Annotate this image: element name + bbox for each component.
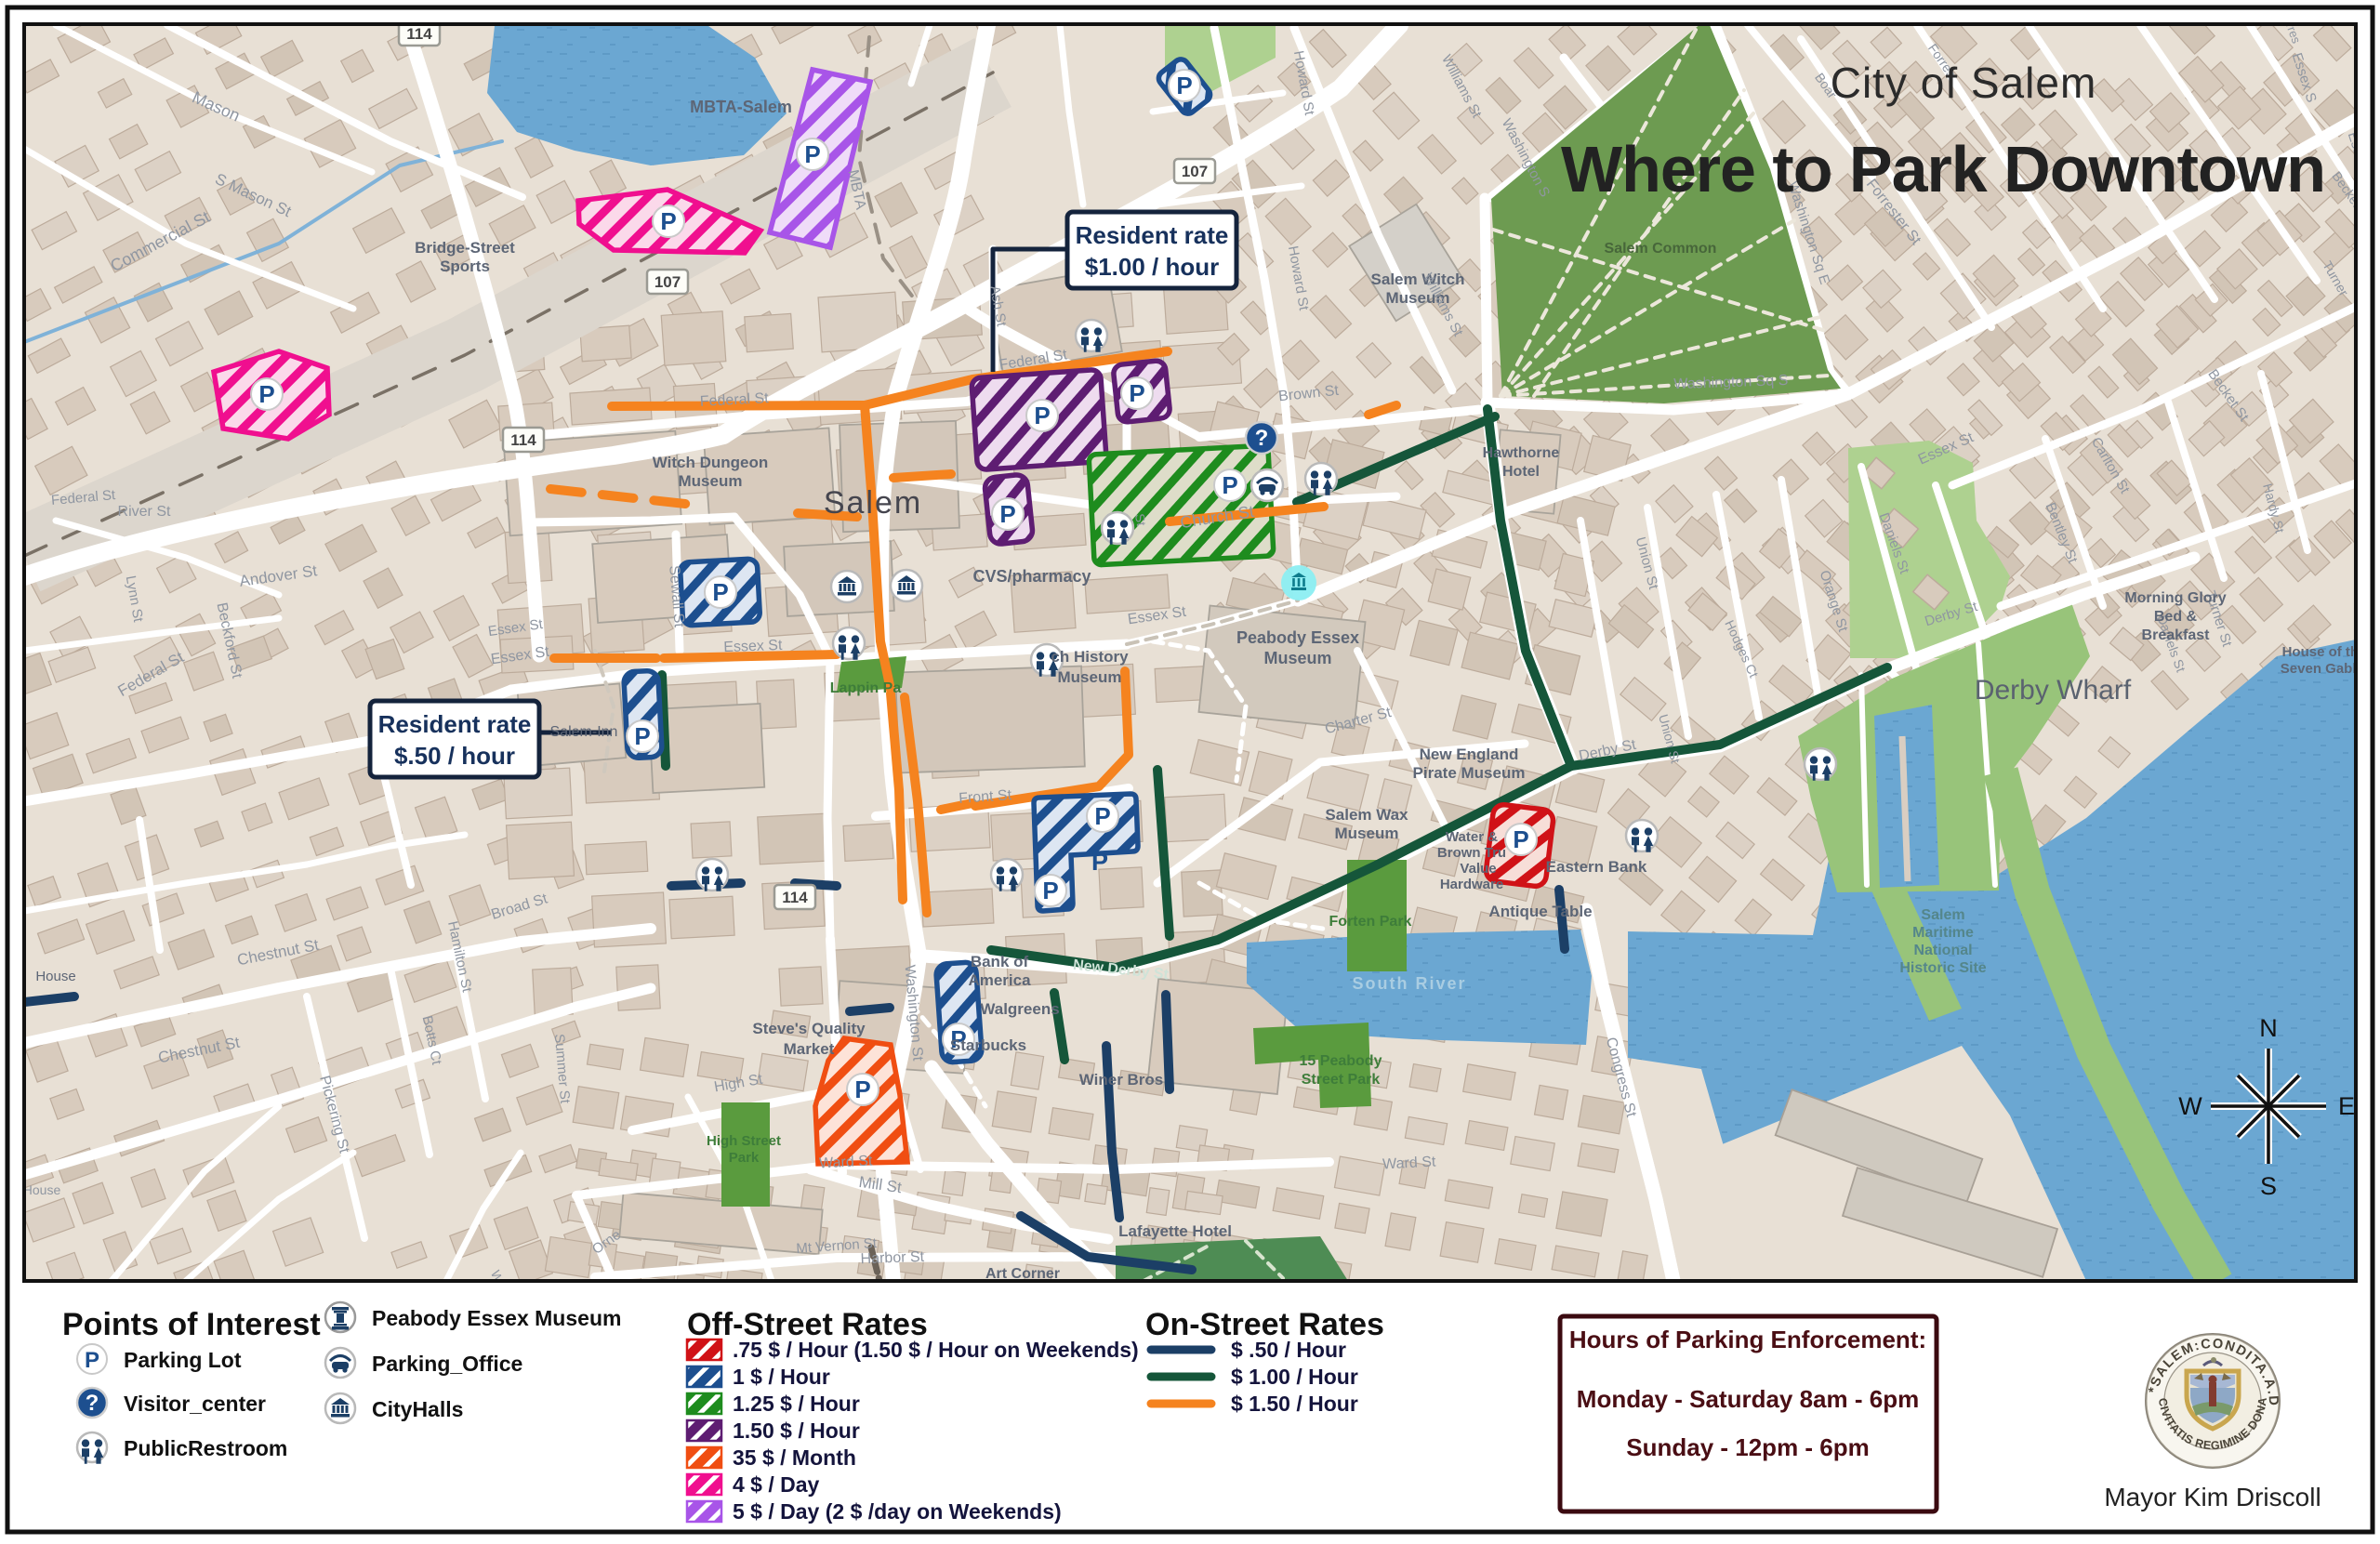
svg-text:W: W	[2178, 1092, 2202, 1120]
svg-text:Visitor_center: Visitor_center	[124, 1392, 266, 1416]
svg-text:1.50 $ / Hour: 1.50 $ / Hour	[733, 1419, 860, 1443]
svg-text:P: P	[712, 578, 728, 606]
svg-text:Harbor St: Harbor St	[860, 1249, 925, 1267]
svg-text:Points of Interest: Points of Interest	[62, 1307, 321, 1342]
svg-text:114: 114	[510, 431, 536, 449]
svg-text:Parking Lot: Parking Lot	[124, 1348, 242, 1372]
svg-text:Hours of Parking Enforcement:: Hours of Parking Enforcement:	[1569, 1326, 1926, 1353]
svg-text:P: P	[1091, 848, 1108, 876]
svg-text:Water &: Water &	[1446, 829, 1498, 845]
svg-text:CityHalls: CityHalls	[372, 1397, 463, 1421]
svg-text:City of Salem: City of Salem	[1831, 59, 2097, 107]
svg-text:114: 114	[406, 25, 432, 43]
svg-text:Resident rate: Resident rate	[378, 710, 532, 738]
svg-text:107: 107	[654, 273, 681, 291]
svg-text:South River: South River	[1352, 974, 1466, 993]
svg-text:Hardware: Hardware	[1440, 877, 1503, 892]
svg-text:.75 $ / Hour (1.50 $ / Hour o: .75 $ / Hour (1.50 $ / Hour on Weekends)	[733, 1338, 1139, 1362]
svg-text:Salem-Inn: Salem-Inn	[550, 724, 618, 740]
svg-text:Monday - Saturday 8am - 6pm: Monday - Saturday 8am - 6pm	[1577, 1385, 1919, 1413]
svg-text:House: House	[23, 1182, 61, 1197]
svg-text:$.50 / hour: $.50 / hour	[394, 742, 515, 770]
svg-text:1 $ / Hour: 1 $ / Hour	[733, 1365, 830, 1389]
svg-text:PublicRestroom: PublicRestroom	[124, 1436, 287, 1460]
svg-text:Brown Tru: Brown Tru	[1437, 845, 1506, 861]
svg-text:Resident rate: Resident rate	[1076, 221, 1229, 249]
svg-text:Ward St: Ward St	[1382, 1154, 1437, 1172]
svg-text:Antique Table: Antique Table	[1488, 903, 1592, 920]
svg-text:P: P	[1222, 471, 1237, 499]
svg-text:Steve's Quality: Steve's Quality	[752, 1020, 866, 1037]
svg-text:P: P	[854, 1076, 870, 1103]
svg-text:Breakfast: Breakfast	[2142, 627, 2211, 643]
svg-text:5 $ / Day (2 $ /day on Weekend: 5 $ / Day (2 $ /day on Weekends)	[733, 1499, 1062, 1524]
svg-text:Derby Wharf: Derby Wharf	[1975, 675, 2132, 706]
svg-text:Parking_Office: Parking_Office	[372, 1352, 522, 1376]
svg-text:Museum: Museum	[679, 472, 743, 490]
svg-text:Salem Witch: Salem Witch	[1371, 271, 1465, 288]
svg-text:4 $ / Day: 4 $ / Day	[733, 1472, 820, 1497]
svg-text:$ .50 / Hour: $ .50 / Hour	[1231, 1338, 1346, 1362]
svg-text:MBTA-Salem: MBTA-Salem	[690, 98, 792, 116]
svg-text:1.25 $ / Hour: 1.25 $ / Hour	[733, 1392, 860, 1416]
svg-text:P: P	[1513, 825, 1528, 853]
svg-text:Lafayette Hotel: Lafayette Hotel	[1118, 1222, 1232, 1240]
svg-text:P: P	[999, 500, 1015, 528]
svg-text:ch History: ch History	[1051, 648, 1129, 666]
svg-text:?: ?	[86, 1391, 99, 1416]
svg-text:$1.00 / hour: $1.00 / hour	[1085, 253, 1220, 281]
svg-text:Sports: Sports	[440, 257, 490, 275]
svg-text:Salem Wax: Salem Wax	[1325, 806, 1408, 824]
svg-text:Market: Market	[784, 1040, 835, 1058]
svg-text:S: S	[2260, 1172, 2277, 1200]
svg-text:Morning Glory: Morning Glory	[2124, 590, 2226, 606]
svg-text:CVS/pharmacy: CVS/pharmacy	[972, 567, 1091, 586]
svg-text:$ 1.00 / Hour: $ 1.00 / Hour	[1231, 1365, 1358, 1389]
svg-text:Ward St: Ward St	[819, 1153, 874, 1171]
svg-text:Bed &: Bed &	[2154, 609, 2198, 625]
svg-text:House: House	[35, 969, 75, 984]
svg-text:Street Park: Street Park	[1302, 1072, 1381, 1088]
svg-text:Museum: Museum	[1058, 668, 1122, 686]
svg-text:P: P	[85, 1348, 99, 1373]
svg-text:E: E	[2338, 1092, 2355, 1120]
svg-text:America: America	[968, 971, 1031, 989]
svg-text:?: ?	[1255, 426, 1269, 451]
svg-text:Lappin Pa: Lappin Pa	[830, 680, 902, 696]
svg-text:High Street: High Street	[707, 1133, 781, 1149]
svg-text:Historic Site: Historic Site	[1899, 960, 1986, 976]
svg-text:Winer Bros: Winer Bros	[1079, 1071, 1164, 1089]
svg-text:Bank of: Bank of	[971, 953, 1029, 970]
svg-text:Witch Dungeon: Witch Dungeon	[653, 454, 769, 471]
svg-text:P: P	[1042, 877, 1058, 904]
svg-text:Museum: Museum	[1263, 649, 1331, 667]
svg-text:35 $ / Month: 35 $ / Month	[733, 1445, 856, 1470]
svg-text:P: P	[1094, 802, 1110, 830]
svg-text:National: National	[1913, 943, 1972, 958]
svg-text:P: P	[258, 380, 274, 408]
svg-text:Essex St: Essex St	[723, 638, 783, 655]
svg-text:Starbucks: Starbucks	[950, 1036, 1026, 1054]
svg-text:Salem: Salem	[1921, 907, 1964, 923]
svg-text:P: P	[804, 140, 820, 168]
svg-text:Eastern Bank: Eastern Bank	[1546, 858, 1647, 876]
svg-text:Hotel: Hotel	[1502, 464, 1540, 480]
svg-text:P: P	[1176, 72, 1192, 99]
svg-text:Sunday - 12pm - 6pm: Sunday - 12pm - 6pm	[1626, 1433, 1870, 1461]
svg-text:$ 1.50 / Hour: $ 1.50 / Hour	[1231, 1392, 1358, 1416]
svg-text:New England: New England	[1420, 746, 1519, 763]
svg-text:15 Peabody: 15 Peabody	[1300, 1053, 1382, 1069]
svg-text:Walgreens: Walgreens	[980, 1000, 1059, 1018]
svg-text:River St: River St	[118, 504, 171, 520]
svg-text:Peabody Essex Museum: Peabody Essex Museum	[372, 1306, 621, 1330]
svg-text:Park: Park	[729, 1150, 760, 1166]
svg-text:N: N	[2259, 1014, 2278, 1042]
svg-text:Bridge-Street: Bridge-Street	[415, 239, 515, 257]
svg-text:P: P	[660, 207, 676, 235]
svg-text:P: P	[1034, 402, 1050, 429]
svg-text:Hawthorne: Hawthorne	[1483, 445, 1560, 461]
svg-text:Value: Value	[1460, 861, 1496, 877]
svg-text:Pirate Museum: Pirate Museum	[1413, 764, 1526, 782]
svg-text:House of the: House of the	[2282, 644, 2367, 660]
svg-text:Mayor Kim Driscoll: Mayor Kim Driscoll	[2104, 1483, 2320, 1511]
svg-text:Salem Common: Salem Common	[1605, 241, 1717, 257]
svg-text:Peabody Essex: Peabody Essex	[1236, 628, 1359, 647]
svg-text:Forten Park: Forten Park	[1329, 914, 1412, 930]
svg-text:Where to Park Downtown: Where to Park Downtown	[1561, 133, 2325, 205]
svg-text:Maritime: Maritime	[1912, 925, 1974, 941]
svg-text:114: 114	[782, 889, 808, 906]
svg-text:P: P	[1129, 379, 1144, 407]
svg-text:107: 107	[1182, 163, 1208, 180]
svg-text:P: P	[634, 722, 650, 750]
svg-text:Salem: Salem	[824, 485, 922, 521]
svg-text:Museum: Museum	[1335, 825, 1399, 842]
